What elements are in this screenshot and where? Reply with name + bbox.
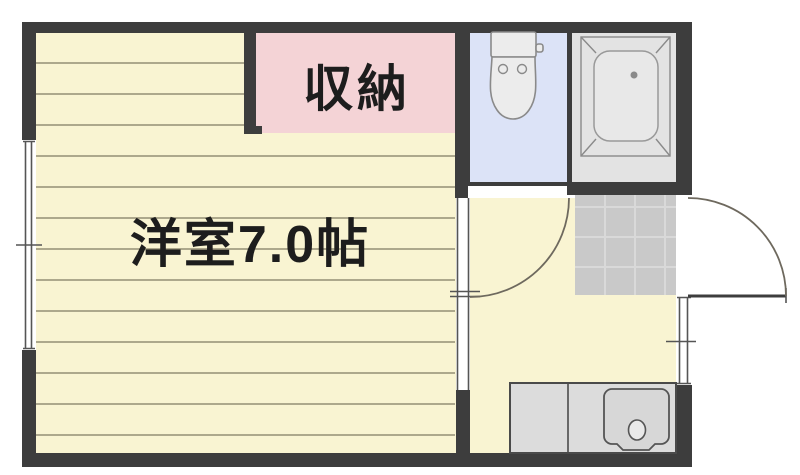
wall-top: [22, 22, 692, 33]
toilet-tank: [491, 32, 536, 57]
room-toilet-partition-wall: [455, 22, 470, 198]
sink-drain: [629, 420, 646, 440]
toilet-bath-divider: [567, 33, 572, 182]
toilet-doorway-threshold: [468, 186, 567, 198]
bathtub-drain: [631, 72, 638, 79]
wall-right-upper: [676, 22, 692, 195]
wall-left-upper: [22, 22, 36, 142]
kitchen-counter: [510, 383, 676, 453]
bath-bottom-wall: [567, 182, 692, 195]
wall-left-lower: [22, 349, 36, 467]
closet-wall-foot: [256, 126, 262, 134]
toilet-bowl: [490, 57, 535, 119]
wall-right-lower: [676, 385, 692, 467]
room-label: 洋室7.0帖: [130, 216, 370, 274]
entrance-genkan-tiles: [575, 195, 676, 295]
bathtub-basin: [594, 51, 658, 141]
closet-partition-wall: [244, 22, 256, 134]
floor-plan: 洋室7.0帖 収納: [0, 0, 800, 475]
closet-label: 収納: [303, 61, 411, 117]
toilet-flush-knob: [536, 44, 543, 52]
toilet-bottom-line: [468, 182, 567, 186]
room-kitchen-wall-stub: [456, 390, 470, 453]
right-window-opening: [676, 296, 692, 385]
floor-plan-drawing: 洋室7.0帖 収納: [0, 0, 800, 475]
entrance-opening: [676, 195, 692, 296]
wall-bottom: [22, 453, 692, 467]
